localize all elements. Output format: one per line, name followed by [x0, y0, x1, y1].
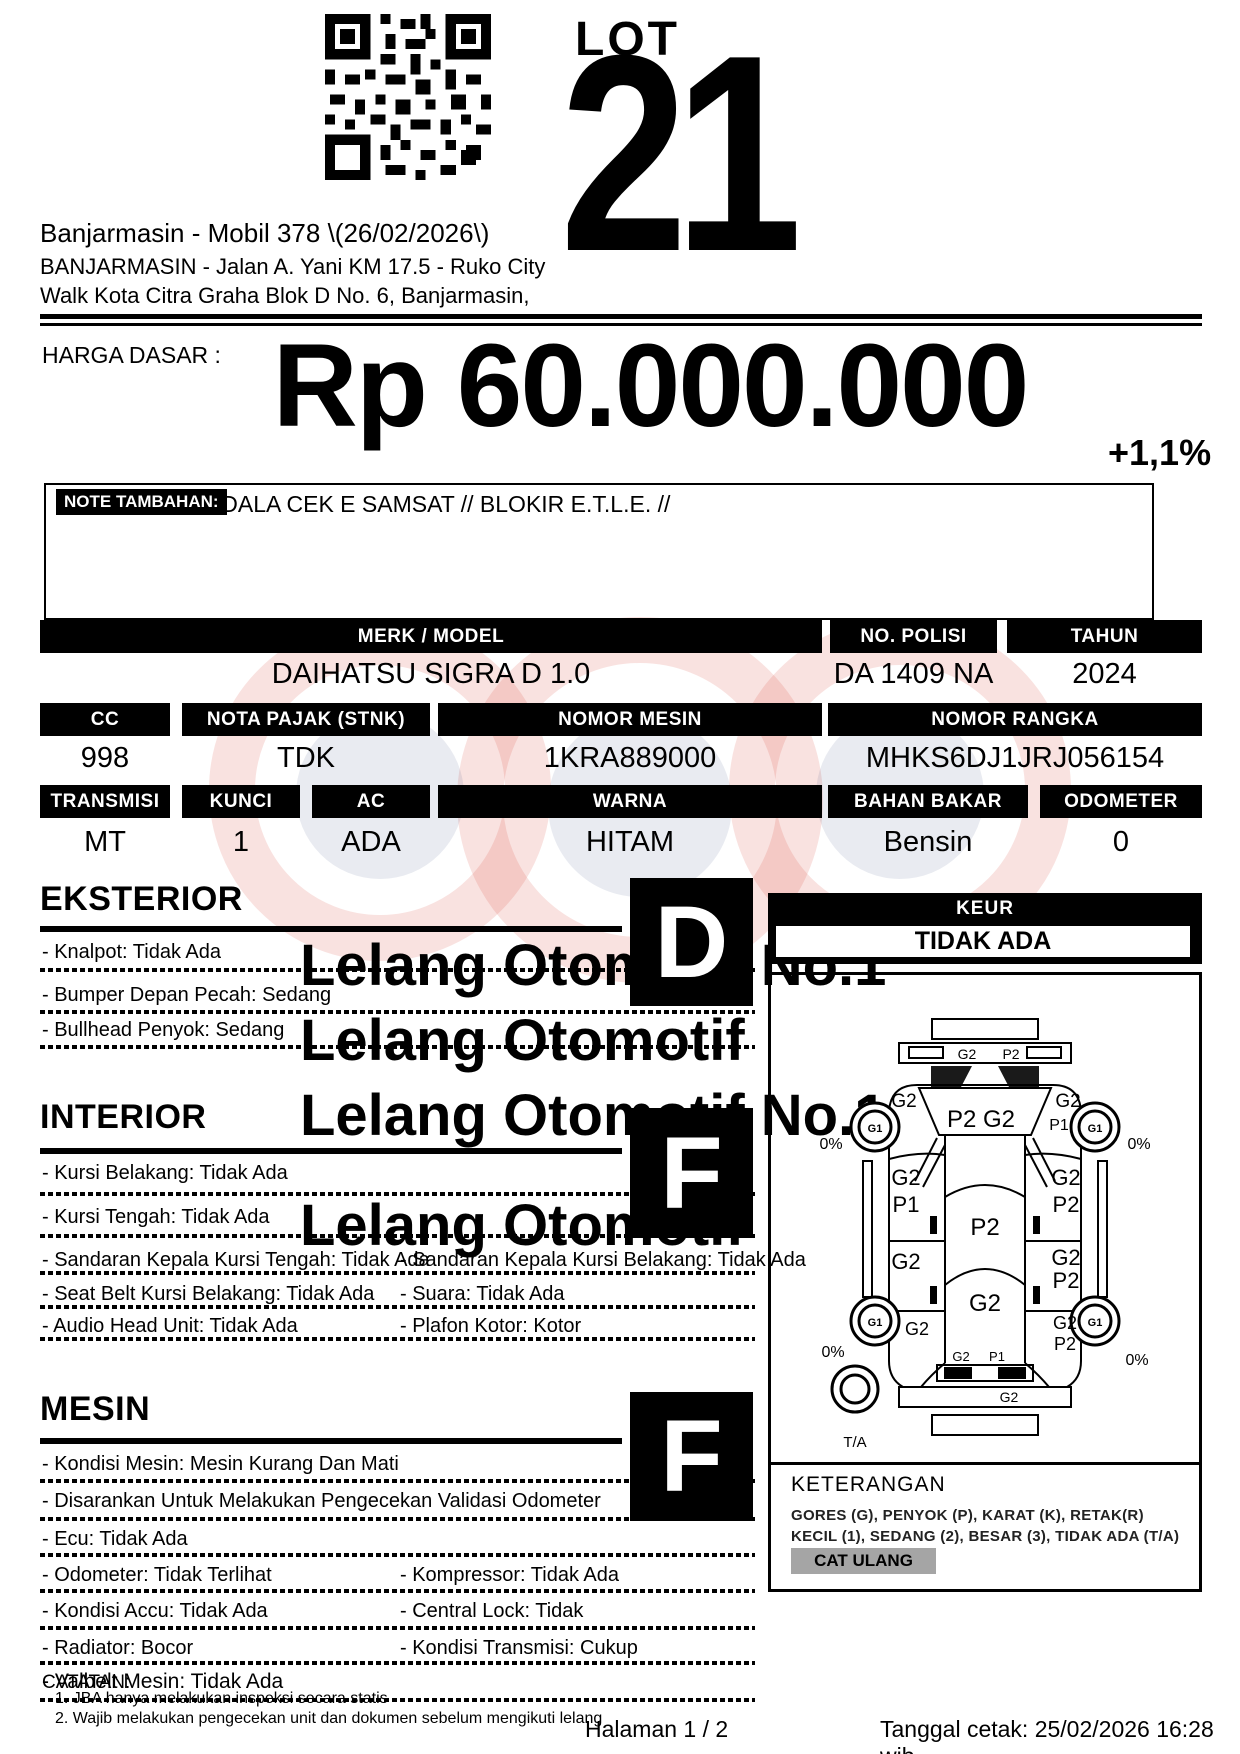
damage-code: G2: [1053, 1313, 1077, 1333]
damage-code: P2: [970, 1214, 999, 1241]
damage-code: P2: [1053, 1192, 1080, 1217]
header-nomor-mesin: NOMOR MESIN: [438, 703, 822, 736]
value-nomor-rangka: MHKS6DJ1JRJ056154: [828, 742, 1202, 775]
header-cc: CC: [40, 703, 170, 736]
header-nota-pajak: NOTA PAJAK (STNK): [182, 703, 430, 736]
checklist-item: - Kondisi Mesin: Mesin Kurang Dan Mati: [42, 1453, 399, 1476]
tread-depth: 0%: [1125, 1352, 1148, 1369]
rocker-right: [1098, 1161, 1107, 1297]
checklist-item: - Suara: Tidak Ada: [400, 1283, 565, 1306]
dotted-separator: [40, 1010, 755, 1014]
header-kunci: KUNCI: [182, 785, 300, 818]
value-no-polisi: DA 1409 NA: [830, 658, 997, 691]
checklist-item: - Sandaran Kepala Kursi Belakang: Tidak …: [400, 1249, 806, 1272]
section-title-eksterior: EKSTERIOR: [40, 880, 243, 919]
damage-code: G2: [969, 1290, 1001, 1317]
damage-code: G2: [1055, 1091, 1080, 1112]
checklist-item: - Disarankan Untuk Melakukan Pengecekan …: [42, 1490, 601, 1513]
damage-code: G1: [1088, 1123, 1103, 1135]
keur-box: KEUR TIDAK ADA: [768, 893, 1202, 964]
damage-code: P1: [893, 1192, 920, 1217]
rear-plate: [932, 1019, 1038, 1039]
damage-code: G2: [891, 1249, 920, 1274]
mesin-grade-badge: F: [630, 1392, 753, 1521]
value-warna: HITAM: [438, 826, 822, 859]
additional-note-box: KENDALA CEK E SAMSAT // BLOKIR E.T.L.E. …: [44, 483, 1154, 620]
checklist-item: - Bumper Depan Pecah: Sedang: [42, 984, 331, 1007]
value-ac: ADA: [312, 826, 430, 859]
price-increment: +1,1%: [1108, 432, 1211, 474]
keur-value: TIDAK ADA: [776, 926, 1190, 957]
header-tahun: TAHUN: [1007, 620, 1202, 653]
front-plate: [932, 1415, 1038, 1435]
car-damage-diagram: G2 P2 G2 G2 P1 P2 G2 G1 G1 0% 0% G2 P1 G…: [771, 975, 1199, 1462]
keur-label: KEUR: [768, 893, 1202, 925]
tread-depth: 0%: [819, 1136, 842, 1153]
header-odometer: ODOMETER: [1040, 785, 1202, 818]
tail-light-left: [909, 1047, 943, 1058]
dotted-separator: [40, 1661, 755, 1665]
damage-code: P2: [1053, 1268, 1080, 1293]
value-merk-model: DAIHATSU SIGRA D 1.0: [40, 658, 822, 691]
damage-code: G2: [891, 1091, 916, 1112]
value-nomor-mesin: 1KRA889000: [438, 742, 822, 775]
headlight-left: [945, 1368, 971, 1378]
damage-code: G2: [1051, 1165, 1080, 1190]
value-kunci: 1: [182, 826, 300, 859]
value-cc: 998: [40, 742, 170, 775]
dotted-separator: [40, 1589, 755, 1593]
footer-note-2: 2. Wajib melakukan pengecekan unit dan d…: [55, 1710, 602, 1728]
keterangan-legend-1: GORES (G), PENYOK (P), KARAT (K), RETAK(…: [791, 1507, 1144, 1524]
dotted-separator: [40, 1305, 755, 1309]
damage-code: G2: [1000, 1389, 1019, 1405]
qr-code: [325, 14, 491, 185]
panel-divider: [771, 1462, 1199, 1465]
header-ac: AC: [312, 785, 430, 818]
header-no-polisi: NO. POLISI: [830, 620, 997, 653]
door-handle: [931, 1217, 936, 1233]
cat-ulang-badge: CAT ULANG: [791, 1548, 936, 1574]
print-timestamp: Tanggal cetak: 25/02/2026 16:28 wib: [880, 1716, 1240, 1754]
damage-code: G1: [868, 1317, 883, 1329]
damage-code: G2: [891, 1165, 920, 1190]
dotted-separator: [40, 1553, 755, 1557]
dotted-separator: [40, 1626, 755, 1630]
checklist-item: - Bullhead Penyok: Sedang: [42, 1019, 284, 1042]
damage-code: P1: [989, 1349, 1005, 1364]
base-price-amount: Rp 60.000.000: [210, 318, 1090, 454]
damage-code: G1: [1088, 1317, 1103, 1329]
section-rule: [40, 1438, 622, 1444]
checklist-item: - Sandaran Kepala Kursi Tengah: Tidak Ad…: [42, 1249, 430, 1272]
auction-address-line2: Walk Kota Citra Graha Blok D No. 6, Banj…: [40, 283, 529, 309]
auction-lot-sheet: Lelang Otomotif No.1 Lelang Otomotif Lel…: [0, 0, 1240, 1754]
damage-code: P2 G2: [947, 1106, 1015, 1133]
section-title-mesin: MESIN: [40, 1390, 150, 1429]
checklist-item: - Kursi Tengah: Tidak Ada: [42, 1206, 270, 1229]
checklist-item: - Radiator: Bocor: [42, 1637, 193, 1660]
value-tahun: 2024: [1007, 658, 1202, 691]
damage-code: G2: [1051, 1245, 1080, 1270]
spare-tire-code: T/A: [843, 1434, 866, 1451]
dotted-separator: [40, 1271, 755, 1275]
value-bahan-bakar: Bensin: [828, 826, 1028, 859]
checklist-item: - Knalpot: Tidak Ada: [42, 941, 221, 964]
checklist-item: - Odometer: Tidak Terlihat: [42, 1564, 272, 1587]
section-rule: [40, 1148, 622, 1154]
base-price-label: HARGA DASAR :: [42, 342, 221, 369]
header-bahan-bakar: BAHAN BAKAR: [828, 785, 1028, 818]
door-handle: [1034, 1287, 1039, 1303]
damage-code: P2: [1054, 1334, 1076, 1354]
checklist-item: - Audio Head Unit: Tidak Ada: [42, 1315, 298, 1338]
page-indicator: Halaman 1 / 2: [585, 1716, 728, 1743]
damage-code: G2: [958, 1046, 977, 1062]
checklist-item: - Seat Belt Kursi Belakang: Tidak Ada: [42, 1283, 374, 1306]
value-odometer: 0: [1040, 826, 1202, 859]
tail-light-right: [1027, 1047, 1061, 1058]
header-merk-model: MERK / MODEL: [40, 620, 822, 653]
footer-note-1: 1. JBA hanya melakukan inspeksi secara s…: [55, 1690, 388, 1708]
tread-depth: 0%: [1127, 1136, 1150, 1153]
checklist-item: - Kursi Belakang: Tidak Ada: [42, 1162, 288, 1185]
damage-code: P2: [1002, 1046, 1019, 1062]
lot-number: 21: [560, 28, 789, 280]
checklist-item: - Kondisi Accu: Tidak Ada: [42, 1600, 268, 1623]
header-warna: WARNA: [438, 785, 822, 818]
dotted-separator: [40, 1045, 755, 1049]
section-rule: [40, 926, 622, 932]
additional-note-label: NOTE TAMBAHAN:: [56, 489, 227, 515]
damage-code: G1: [868, 1123, 883, 1135]
dotted-separator: [40, 1337, 755, 1341]
auction-title: Banjarmasin - Mobil 378 \(26/02/2026\): [40, 218, 489, 249]
checklist-item: - Kompressor: Tidak Ada: [400, 1564, 619, 1587]
damage-code: G2: [952, 1349, 969, 1364]
door-handle: [931, 1287, 936, 1303]
section-title-interior: INTERIOR: [40, 1098, 206, 1137]
header-nomor-rangka: NOMOR RANGKA: [828, 703, 1202, 736]
watermark-text: Lelang Otomotif: [300, 1008, 745, 1073]
header-transmisi: TRANSMISI: [40, 785, 170, 818]
damage-code: P1: [1049, 1117, 1069, 1134]
auction-address-line1: BANJARMASIN - Jalan A. Yani KM 17.5 - Ru…: [40, 254, 545, 280]
damage-code: G2: [905, 1319, 929, 1339]
headlight-right: [999, 1368, 1025, 1378]
checklist-item: - Ecu: Tidak Ada: [42, 1528, 188, 1551]
interior-grade-badge: F: [630, 1108, 753, 1238]
additional-note-text: KENDALA CEK E SAMSAT // BLOKIR E.T.L.E. …: [174, 491, 670, 518]
checklist-item: - Kondisi Transmisi: Cukup: [400, 1637, 638, 1660]
keterangan-title: KETERANGAN: [791, 1473, 946, 1497]
rocker-left: [863, 1161, 872, 1297]
tread-depth: 0%: [821, 1344, 844, 1361]
eksterior-grade-badge: D: [630, 878, 753, 1006]
value-transmisi: MT: [40, 826, 170, 859]
value-nota-pajak: TDK: [182, 742, 430, 775]
checklist-item: - Central Lock: Tidak: [400, 1600, 583, 1623]
door-handle: [1034, 1217, 1039, 1233]
keterangan-legend-2: KECIL (1), SEDANG (2), BESAR (3), TIDAK …: [791, 1528, 1179, 1545]
damage-diagram-panel: G2 P2 G2 G2 P1 P2 G2 G1 G1 0% 0% G2 P1 G…: [768, 972, 1202, 1592]
front-bumper: [899, 1387, 1071, 1407]
checklist-item: - Plafon Kotor: Kotor: [400, 1315, 581, 1338]
